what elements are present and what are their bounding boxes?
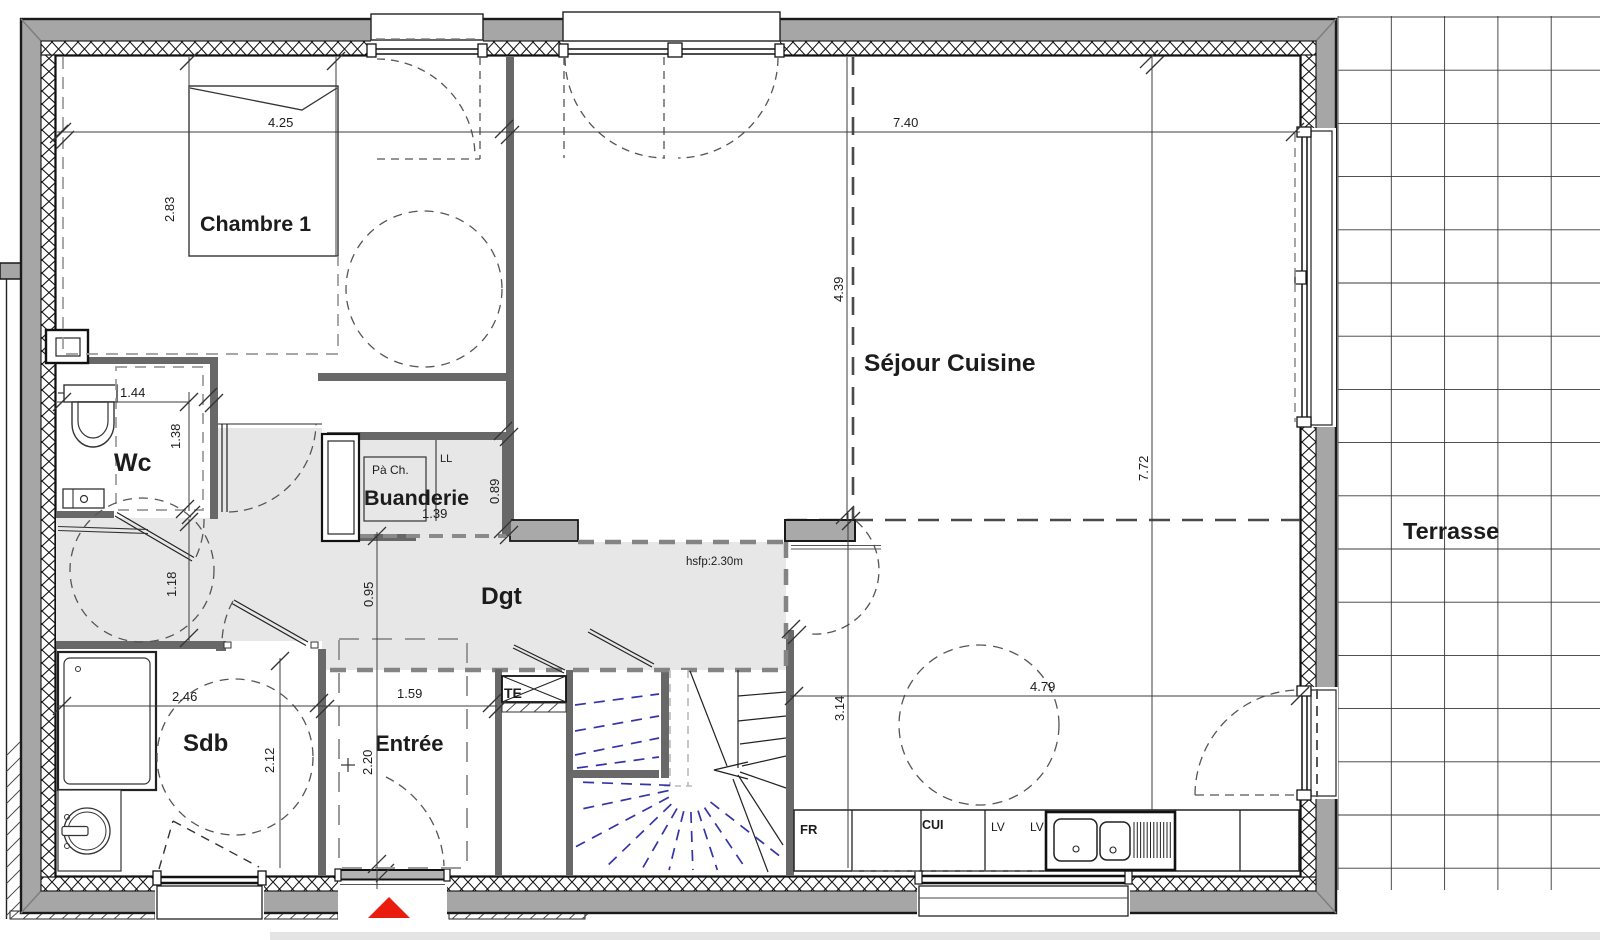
svg-text:2.46: 2.46 [172, 689, 197, 704]
svg-text:2.20: 2.20 [360, 750, 375, 775]
svg-text:Sdb: Sdb [183, 730, 228, 757]
svg-text:1.39: 1.39 [422, 506, 447, 521]
svg-text:7.72: 7.72 [1136, 456, 1151, 481]
svg-text:1.38: 1.38 [168, 424, 183, 449]
svg-text:CUI: CUI [922, 818, 944, 832]
svg-text:4.79: 4.79 [1030, 679, 1055, 694]
svg-text:FR: FR [800, 822, 818, 837]
svg-text:Chambre 1: Chambre 1 [200, 212, 311, 236]
svg-text:4.39: 4.39 [831, 277, 846, 302]
svg-text:TE: TE [504, 685, 522, 701]
svg-text:4.25: 4.25 [268, 115, 293, 130]
svg-text:2.12: 2.12 [262, 748, 277, 773]
svg-text:Dgt: Dgt [481, 583, 522, 610]
svg-text:hsfp:2.30m: hsfp:2.30m [686, 556, 743, 568]
svg-text:1.59: 1.59 [397, 686, 422, 701]
svg-text:Buanderie: Buanderie [364, 486, 469, 510]
svg-text:Pà Ch.: Pà Ch. [372, 463, 409, 477]
svg-text:0.95: 0.95 [361, 582, 376, 607]
svg-text:1.44: 1.44 [120, 385, 145, 400]
svg-text:Wc: Wc [114, 449, 152, 477]
svg-text:Séjour Cuisine: Séjour Cuisine [864, 350, 1036, 377]
svg-text:Entrée: Entrée [375, 731, 443, 756]
svg-text:LV: LV [1030, 820, 1044, 834]
svg-text:2.83: 2.83 [162, 197, 177, 222]
svg-text:Terrasse: Terrasse [1403, 518, 1499, 544]
svg-text:0.89: 0.89 [487, 479, 502, 504]
svg-text:7.40: 7.40 [893, 115, 918, 130]
svg-text:LV: LV [991, 820, 1005, 834]
svg-text:1.18: 1.18 [164, 572, 179, 597]
svg-text:3.14: 3.14 [832, 696, 847, 721]
svg-text:LL: LL [440, 453, 452, 465]
